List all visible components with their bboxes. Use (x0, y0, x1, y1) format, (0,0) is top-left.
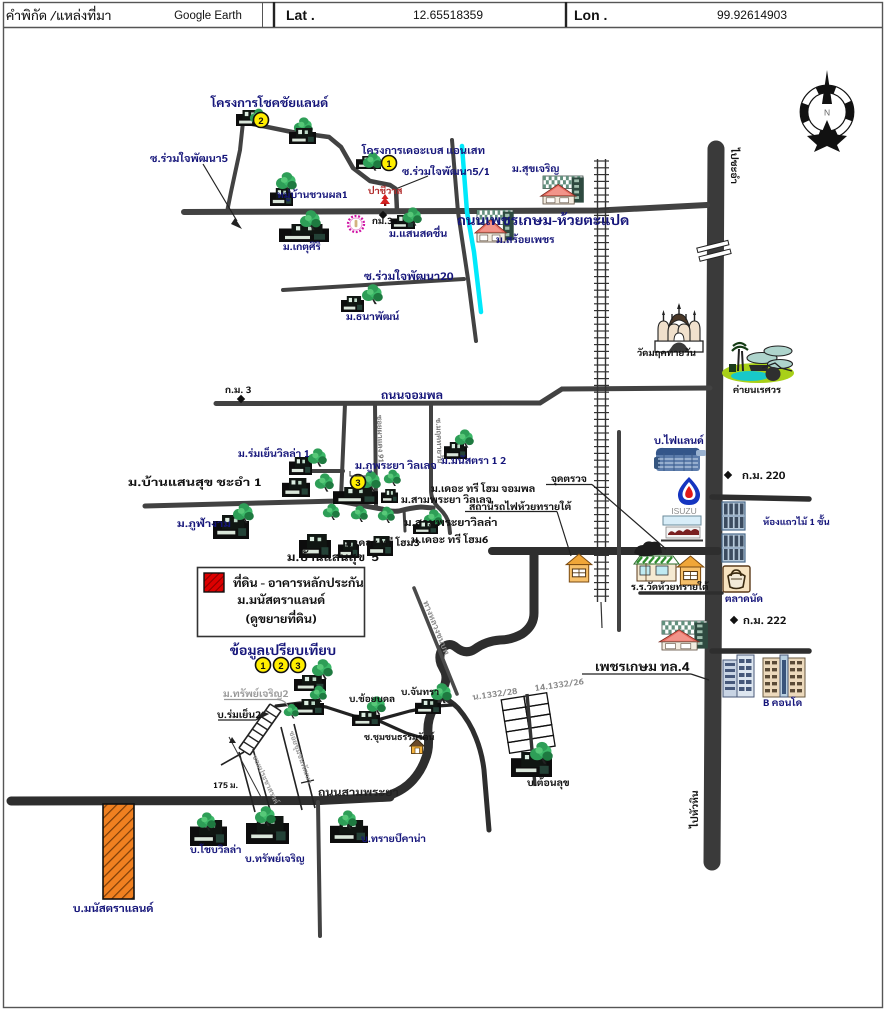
svg-text:ISUZU: ISUZU (671, 506, 697, 516)
svg-text:2: 2 (278, 660, 283, 671)
svg-text:Google Earth: Google Earth (174, 10, 242, 22)
svg-text:1: 1 (386, 158, 391, 169)
svg-text:3: 3 (295, 660, 300, 671)
svg-text:3: 3 (355, 477, 360, 488)
svg-text:Lat .: Lat . (286, 7, 315, 23)
svg-text:Lon .: Lon . (574, 7, 607, 23)
svg-text:2: 2 (258, 115, 263, 126)
svg-text:N: N (824, 108, 830, 118)
svg-text:12.65518359: 12.65518359 (413, 8, 483, 22)
svg-text:1: 1 (260, 660, 265, 671)
svg-text:99.92614903: 99.92614903 (717, 8, 787, 22)
